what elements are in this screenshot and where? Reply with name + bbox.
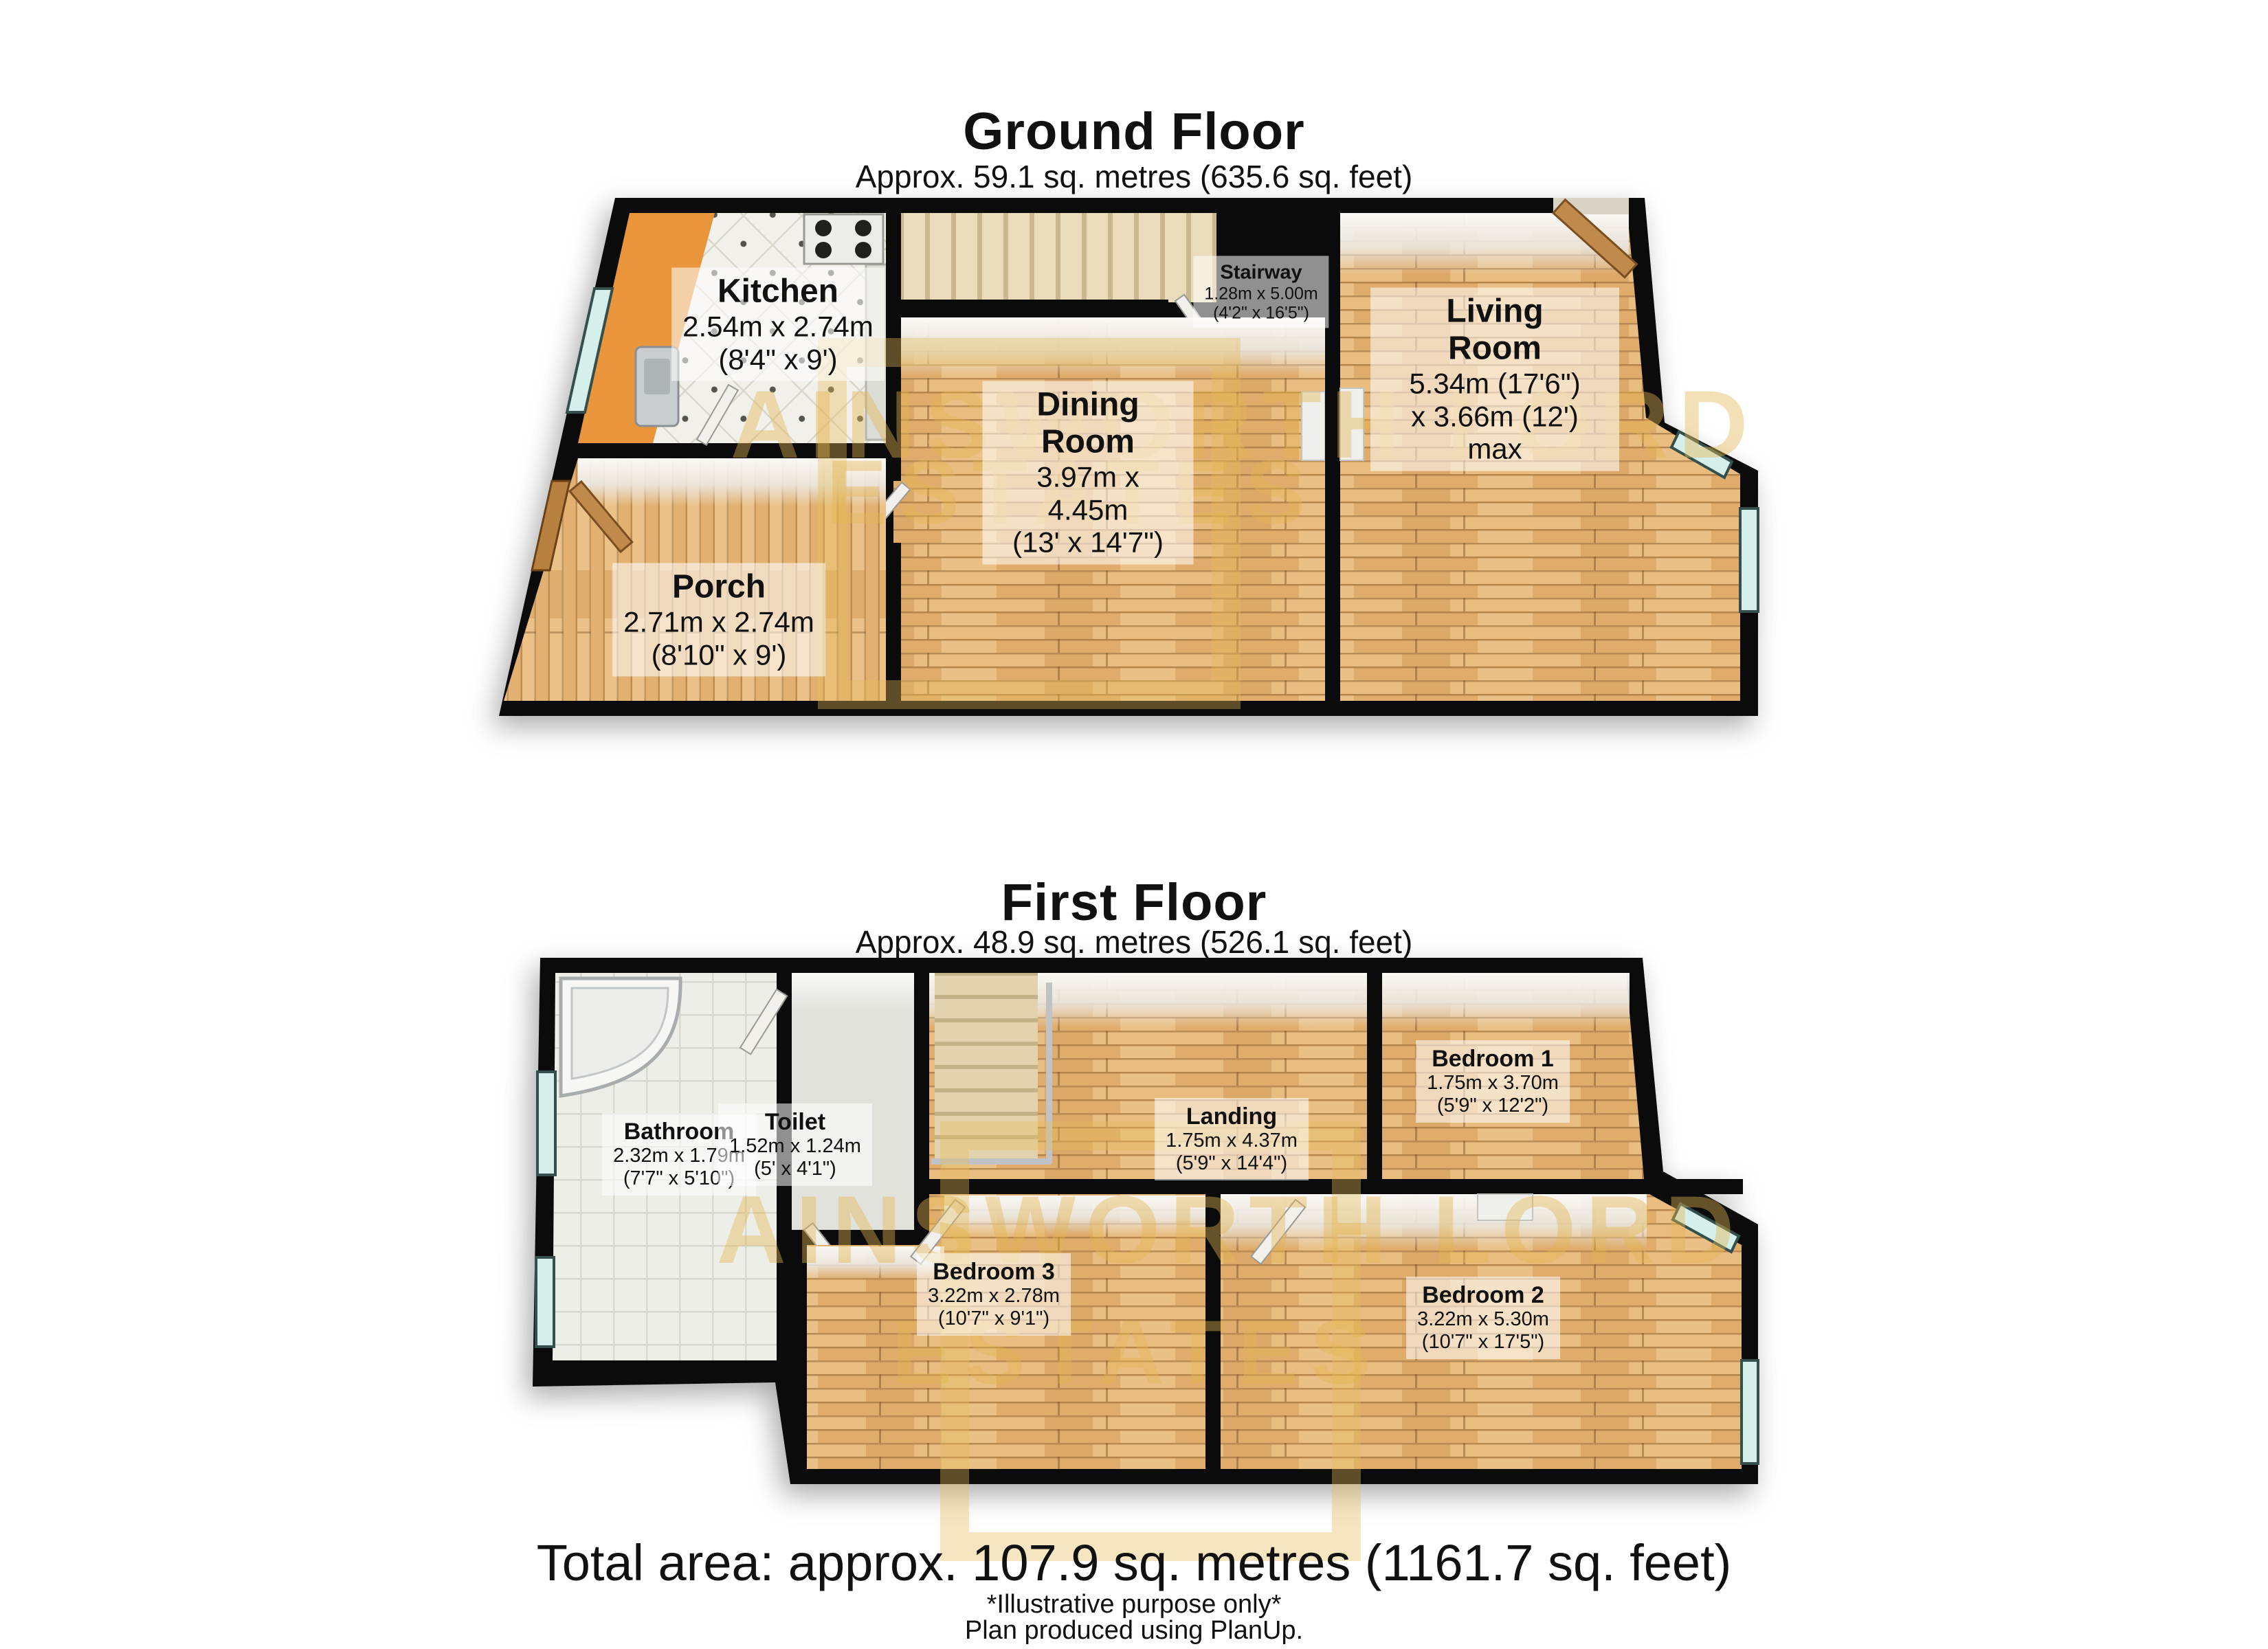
watermark-line1-first: AINSWORTH LORD	[717, 1174, 1744, 1286]
stair-wall	[893, 300, 1168, 316]
living-dim1: 5.34m (17'6")	[1381, 368, 1608, 400]
ff-bay-window-side	[1742, 1360, 1758, 1463]
toilet-wall-face	[792, 973, 914, 1013]
landing-dim1: 1.75m x 4.37m	[1166, 1130, 1298, 1152]
living-dim2: x 3.66m (12') max	[1381, 401, 1608, 466]
room-label-kitchen: Kitchen 2.54m x 2.74m (8'4" x 9')	[671, 267, 885, 381]
first-floor-subtitle: Approx. 48.9 sq. metres (526.1 sq. feet)	[0, 923, 2268, 961]
bedroom3-name: Bedroom 3	[928, 1259, 1060, 1285]
porch-dim1: 2.71m x 2.74m	[623, 606, 814, 638]
porch-name: Porch	[623, 568, 814, 605]
bedroom2-dim2: (10'7" x 17'5")	[1417, 1331, 1549, 1354]
kitchen-dim1: 2.54m x 2.74m	[682, 311, 874, 343]
room-label-toilet: Toilet 1.52m x 1.24m (5' x 4'1")	[718, 1103, 872, 1186]
kitchen-name: Kitchen	[682, 273, 874, 310]
dining-dim1: 3.97m x 4.45m	[994, 461, 1183, 526]
dining-dim2: (13' x 14'7")	[994, 526, 1183, 559]
room-label-bedroom1: Bedroom 1 1.75m x 3.70m (5'9" x 12'2")	[1416, 1040, 1570, 1123]
room-label-porch: Porch 2.71m x 2.74m (8'10" x 9')	[612, 563, 825, 676]
landing-name: Landing	[1166, 1103, 1298, 1130]
kitchen-dim2: (8'4" x 9')	[682, 343, 874, 375]
bedroom1-dim2: (5'9" x 12'2")	[1427, 1095, 1559, 1117]
toilet-name: Toilet	[729, 1109, 861, 1135]
landing-bedroom1-wall	[1367, 973, 1382, 1194]
living-name: Living Room	[1405, 293, 1584, 368]
stairway-name: Stairway	[1204, 261, 1318, 284]
room-label-living: Living Room 5.34m (17'6") x 3.66m (12') …	[1370, 288, 1619, 471]
stairway-dim1: 1.28m x 5.00m	[1204, 284, 1318, 303]
bay-window-side	[1740, 508, 1758, 612]
stairway-dim2: (4'2" x 16'5")	[1204, 303, 1318, 322]
porch-dim2: (8'10" x 9')	[623, 638, 814, 671]
room-label-landing: Landing 1.75m x 4.37m (5'9" x 14'4")	[1155, 1098, 1309, 1180]
bedroom2-dim1: 3.22m x 5.30m	[1417, 1308, 1549, 1331]
floorplan-page: Ground Floor Approx. 59.1 sq. metres (63…	[0, 0, 2268, 1649]
bedroom1-dim1: 1.75m x 3.70m	[1427, 1072, 1559, 1095]
planup-note: Plan produced using PlanUp.	[0, 1616, 2268, 1646]
room-label-dining: Dining Room 3.97m x 4.45m (13' x 14'7")	[983, 381, 1194, 565]
ground-floor-subtitle: Approx. 59.1 sq. metres (635.6 sq. feet)	[0, 158, 2268, 195]
bedroom2-name: Bedroom 2	[1417, 1282, 1549, 1308]
bedroom1-name: Bedroom 1	[1427, 1046, 1559, 1072]
bedroom3-dim2: (10'7" x 9'1")	[928, 1308, 1060, 1330]
total-area-text: Total area: approx. 107.9 sq. metres (11…	[0, 1534, 2268, 1592]
toilet-dim2: (5' x 4'1")	[729, 1158, 861, 1180]
bedroom3-dim1: 3.22m x 2.78m	[928, 1285, 1060, 1308]
room-label-bedroom3: Bedroom 3 3.22m x 2.78m (10'7" x 9'1")	[917, 1253, 1071, 1336]
stairs	[893, 213, 1216, 302]
bathroom-window-a	[537, 1072, 555, 1175]
landing-dim2: (5'9" x 14'4")	[1166, 1152, 1298, 1175]
toilet-dim1: 1.52m x 1.24m	[729, 1135, 861, 1158]
illustrative-note: *Illustrative purpose only*	[0, 1590, 2268, 1619]
room-label-bedroom2: Bedroom 2 3.22m x 5.30m (10'7" x 17'5")	[1406, 1277, 1560, 1359]
sink-basin	[644, 359, 670, 394]
room-label-stairway: Stairway 1.28m x 5.00m (4'2" x 16'5")	[1193, 256, 1328, 328]
bedroom1-wall-face	[1382, 973, 1630, 1028]
bathroom-window-b	[536, 1257, 554, 1347]
dining-name: Dining Room	[994, 387, 1183, 461]
ground-floor-title: Ground Floor	[0, 102, 2268, 161]
stove-icon	[804, 214, 883, 264]
